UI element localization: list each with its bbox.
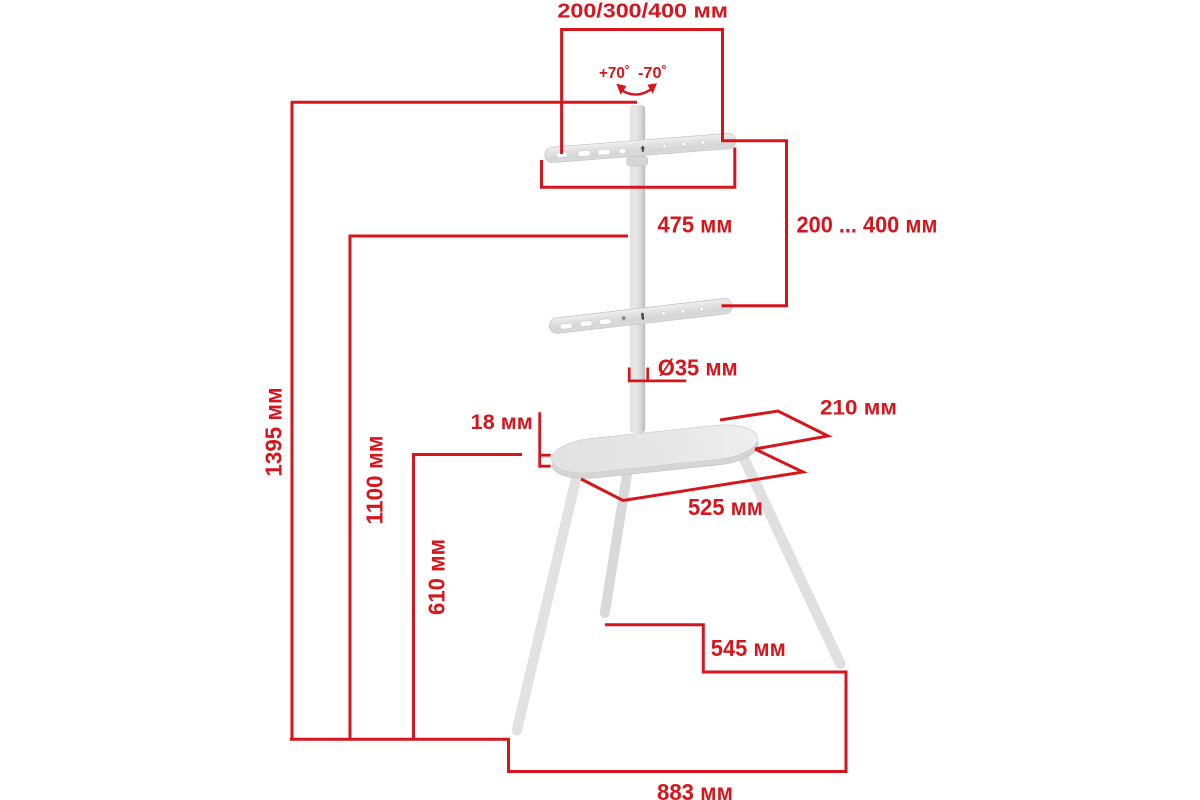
svg-text:475 мм: 475 мм	[658, 211, 733, 237]
svg-text:-70˚: -70˚	[638, 65, 667, 82]
svg-text:200/300/400 мм: 200/300/400 мм	[557, 1, 728, 23]
svg-text:+70˚: +70˚	[599, 65, 630, 82]
svg-text:545 мм: 545 мм	[711, 635, 786, 661]
svg-text:200 ... 400 мм: 200 ... 400 мм	[797, 211, 938, 237]
svg-text:210 мм: 210 мм	[820, 397, 897, 420]
svg-text:610 мм: 610 мм	[424, 539, 450, 615]
svg-text:18 мм: 18 мм	[471, 411, 533, 434]
svg-text:1100 мм: 1100 мм	[362, 436, 388, 525]
svg-text:Ø35 мм: Ø35 мм	[658, 355, 738, 381]
svg-text:883 мм: 883 мм	[657, 779, 733, 800]
svg-text:1395 мм: 1395 мм	[260, 388, 286, 477]
svg-text:525 мм: 525 мм	[688, 494, 763, 520]
